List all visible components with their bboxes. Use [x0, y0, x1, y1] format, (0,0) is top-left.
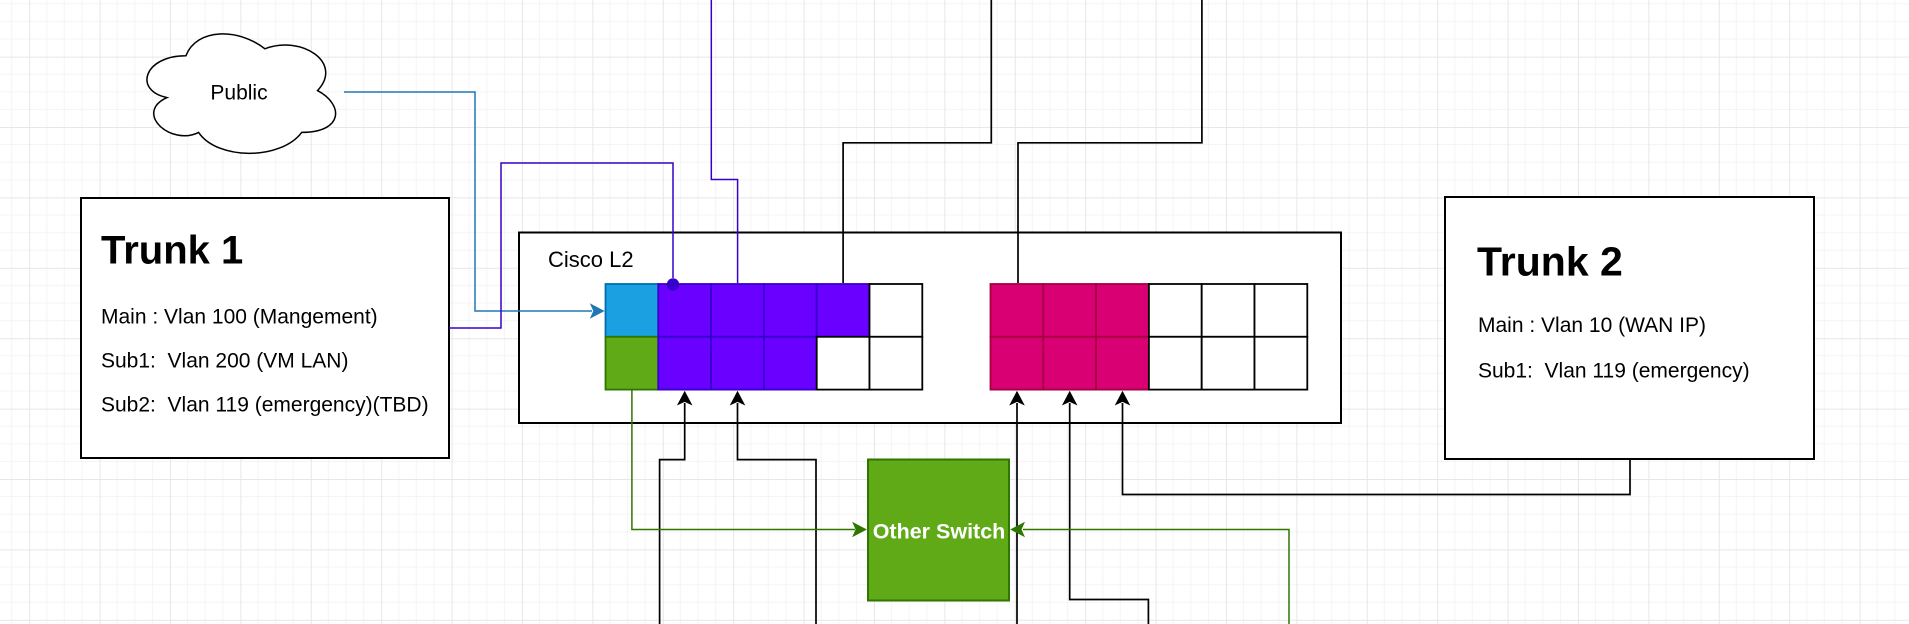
- svg-text:Cisco L2: Cisco L2: [548, 247, 634, 272]
- svg-text:Sub2: Vlan 119 (emergency)(TB: Sub2: Vlan 119 (emergency)(TBD): [101, 394, 429, 417]
- svg-text:Trunk 2: Trunk 2: [1477, 239, 1623, 285]
- svg-text:Main : Vlan 100 (Mangement): Main : Vlan 100 (Mangement): [101, 306, 378, 329]
- svg-text:Main : Vlan 10 (WAN IP): Main : Vlan 10 (WAN IP): [1478, 314, 1706, 337]
- svg-text:Public: Public: [210, 82, 267, 105]
- svg-text:Trunk 1: Trunk 1: [101, 229, 243, 273]
- svg-text:Other Switch: Other Switch: [873, 520, 1006, 544]
- svg-text:Sub1: Vlan 119 (emergency): Sub1: Vlan 119 (emergency): [1478, 360, 1750, 383]
- svg-text:Sub1: Vlan 200 (VM LAN): Sub1: Vlan 200 (VM LAN): [101, 350, 348, 373]
